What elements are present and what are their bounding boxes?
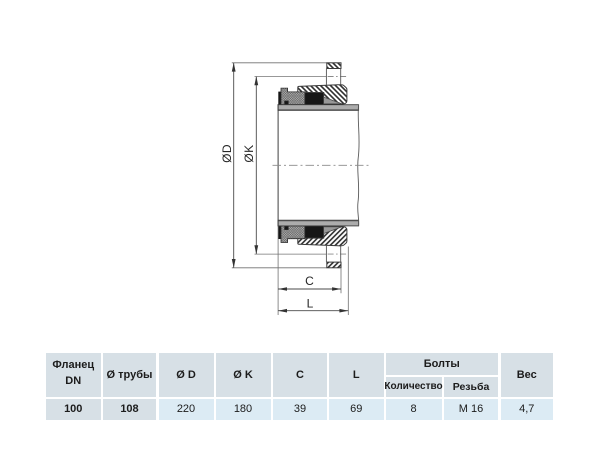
svg-text:ØK: ØK — [242, 144, 256, 162]
svg-text:ØD: ØD — [220, 144, 234, 163]
svg-text:C: C — [305, 274, 314, 288]
svg-text:L: L — [307, 297, 314, 311]
